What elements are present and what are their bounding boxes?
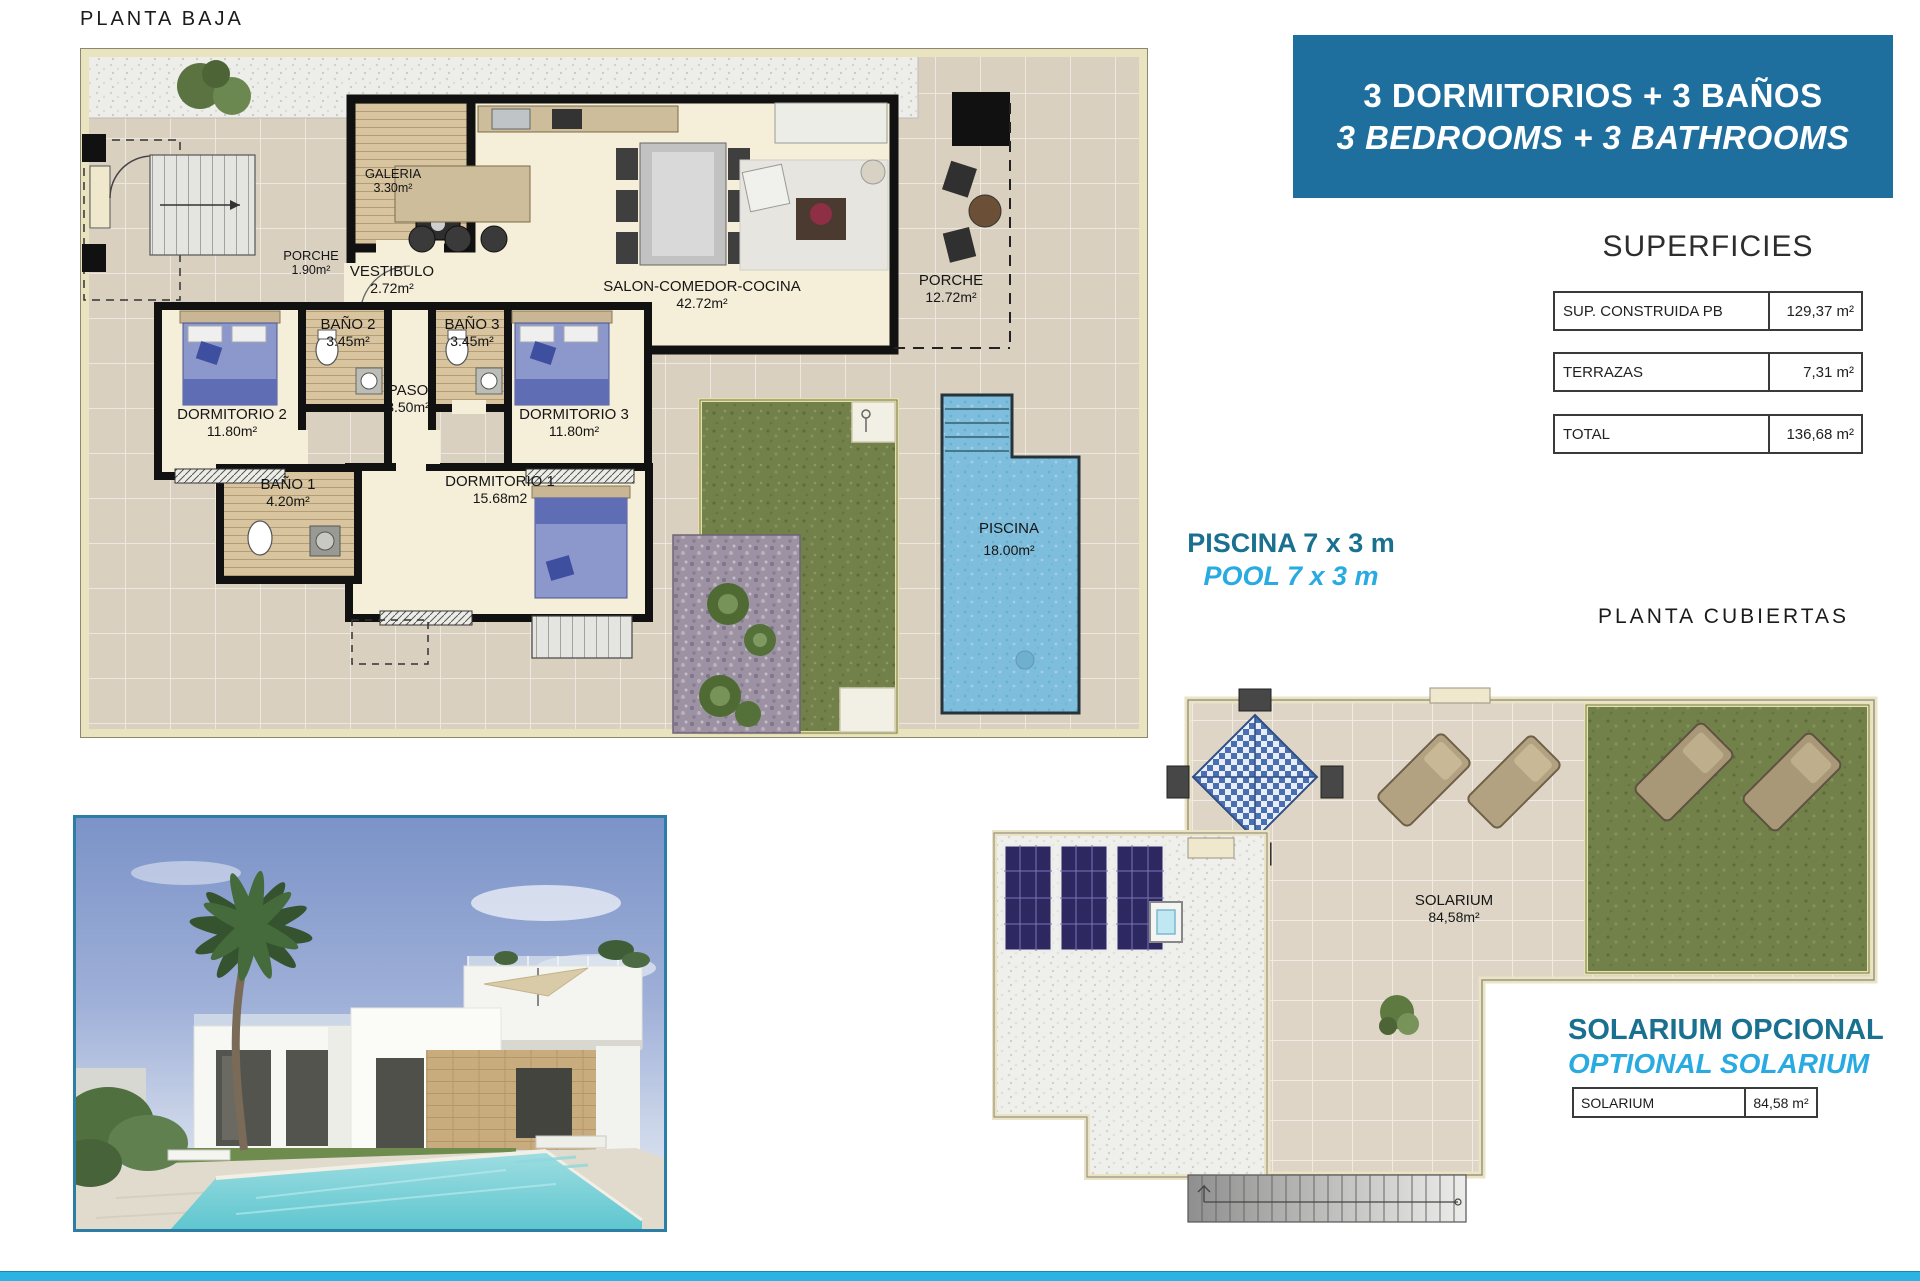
planta-cubiertas-title: PLANTA CUBIERTAS [1598, 605, 1849, 629]
room-label-bano1: BAÑO 14.20m² [260, 476, 315, 510]
roof-gravel-section [994, 833, 1267, 1177]
bed-dormitorio2 [180, 311, 280, 405]
superficies-title: SUPERFICIES [1553, 230, 1863, 264]
room-label-salon: SALON-COMEDOR-COCINA42.72m² [603, 278, 801, 312]
villa-photo [73, 815, 667, 1232]
room-label-paso: PASO3.50m² [386, 382, 430, 416]
superficies-row-total: TOTAL 136,68 m² [1553, 414, 1863, 454]
solar-panels [1004, 845, 1164, 951]
solarium-note: SOLARIUM OPCIONAL OPTIONAL SOLARIUM [1568, 1014, 1884, 1080]
planta-baja-title: PLANTA BAJA [80, 8, 244, 31]
villa-photo-render [76, 818, 664, 1229]
solarium-note-es: SOLARIUM OPCIONAL [1568, 1014, 1884, 1047]
room-label-dormitorio2: DORMITORIO 211.80m² [177, 406, 287, 440]
roof-plan: SOLARIUM84,58m² [992, 680, 1882, 1232]
garden [673, 400, 897, 733]
banner-line-es: 3 DORMITORIOS + 3 BAÑOS [1363, 75, 1822, 117]
pool-note-es: PISCINA 7 x 3 m [1158, 527, 1424, 560]
pool-note-en: POOL 7 x 3 m [1158, 560, 1424, 593]
room-label-porche1: PORCHE1.90m² [283, 248, 339, 278]
bed-dormitorio3 [512, 311, 612, 405]
room-label-dormitorio1: DORMITORIO 115.68m2 [445, 473, 555, 507]
room-label-piscina: PISCINA18.00m² [979, 520, 1039, 559]
floor-plan: GALERIA3.30m² PORCHE1.90m² VESTIBULO2.72… [80, 48, 1148, 738]
room-label-dormitorio3: DORMITORIO 311.80m² [519, 406, 629, 440]
solarium-label: SOLARIUM84,58m² [1415, 892, 1493, 926]
banner-line-en: 3 BEDROOMS + 3 BATHROOMS [1337, 117, 1850, 159]
bedrooms-banner: 3 DORMITORIOS + 3 BAÑOS 3 BEDROOMS + 3 B… [1293, 35, 1893, 198]
room-label-porche2: PORCHE12.72m² [919, 272, 983, 306]
room-label-vestibulo: VESTIBULO2.72m² [350, 263, 434, 297]
room-label-bano2: BAÑO 23.45m² [320, 316, 375, 350]
brochure-page: { "titles": { "planta_baja": "PLANTA BAJ… [0, 0, 1920, 1280]
floor-plan-graphic [80, 48, 1148, 738]
room-label-galeria: GALERIA3.30m² [365, 166, 421, 196]
pool-note: PISCINA 7 x 3 m POOL 7 x 3 m [1158, 527, 1424, 593]
roof-plan-graphic [992, 680, 1882, 1232]
superficies-row-terrazas: TERRAZAS 7,31 m² [1553, 352, 1863, 392]
house-bedrooms [158, 306, 649, 625]
superficies-row-construida: SUP. CONSTRUIDA PB 129,37 m² [1553, 291, 1863, 331]
roof-stairs [1188, 1175, 1466, 1222]
solarium-table: SOLARIUM 84,58 m² [1572, 1087, 1818, 1118]
room-label-bano3: BAÑO 33.45m² [444, 316, 499, 350]
solarium-note-en: OPTIONAL SOLARIUM [1568, 1047, 1884, 1080]
